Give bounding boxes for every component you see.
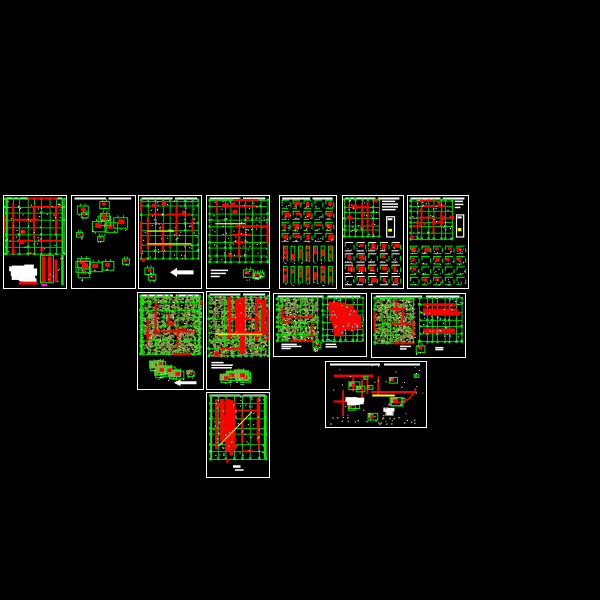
cad-preview-canvas bbox=[0, 0, 600, 600]
sheet-slab-plan-2 bbox=[206, 291, 270, 390]
sheet-plan-with-details-1 bbox=[342, 195, 404, 289]
sheet-stair-section-details-drawing bbox=[326, 362, 426, 427]
sheet-column-details bbox=[279, 195, 337, 289]
sheet-roof-framing-plan-drawing bbox=[207, 393, 269, 477]
sheet-plan-pair-2-drawing bbox=[372, 294, 465, 357]
sheet-beam-details-drawing bbox=[72, 196, 135, 288]
sheet-slab-plan-1 bbox=[137, 292, 204, 390]
sheet-slab-plan-1-drawing bbox=[138, 293, 203, 389]
sheet-foundation-plan-drawing bbox=[4, 196, 66, 288]
sheet-slab-plan-2-drawing bbox=[207, 292, 269, 389]
sheet-floor-plan-1 bbox=[138, 195, 202, 289]
sheet-plan-pair-1-drawing bbox=[274, 294, 366, 356]
sheet-plan-with-details-2 bbox=[407, 195, 469, 289]
sheet-column-details-drawing bbox=[280, 196, 336, 288]
sheet-floor-plan-2 bbox=[206, 195, 270, 289]
sheet-floor-plan-1-drawing bbox=[139, 196, 201, 288]
sheet-plan-with-details-1-drawing bbox=[343, 196, 403, 288]
sheet-plan-with-details-2-drawing bbox=[408, 196, 468, 288]
sheet-plan-pair-2 bbox=[371, 293, 466, 358]
sheet-beam-details bbox=[71, 195, 136, 289]
sheet-stair-section-details bbox=[325, 361, 427, 428]
sheet-foundation-plan bbox=[3, 195, 67, 289]
sheet-roof-framing-plan bbox=[206, 392, 270, 478]
sheet-floor-plan-2-drawing bbox=[207, 196, 269, 288]
sheet-plan-pair-1 bbox=[273, 293, 367, 357]
